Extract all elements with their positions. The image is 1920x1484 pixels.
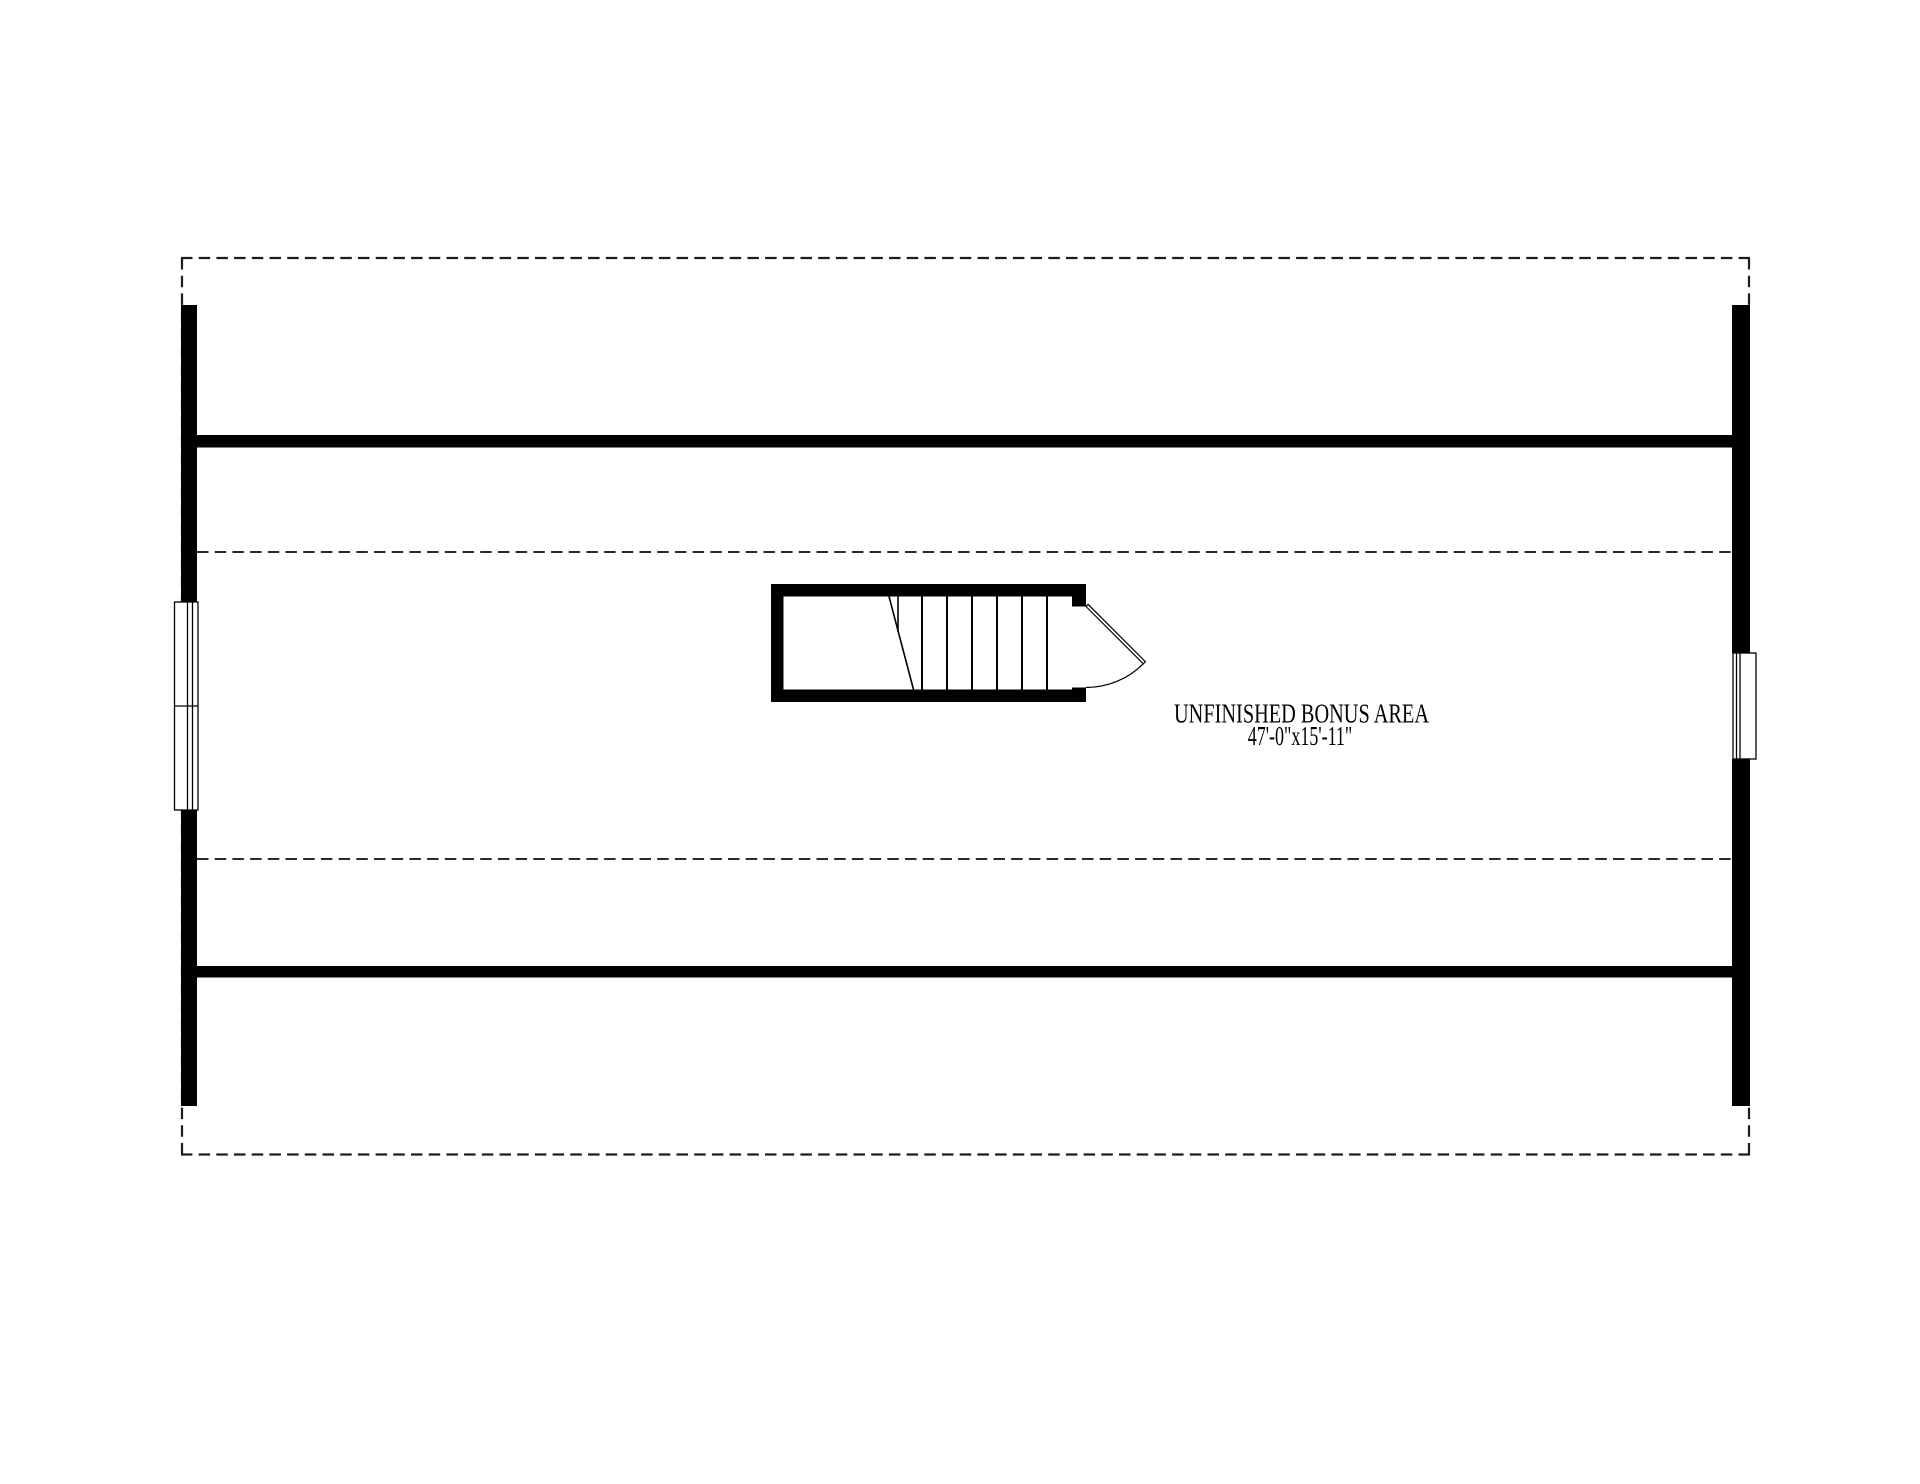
svg-text:47'-0"x15'-11": 47'-0"x15'-11" [1248, 721, 1353, 751]
